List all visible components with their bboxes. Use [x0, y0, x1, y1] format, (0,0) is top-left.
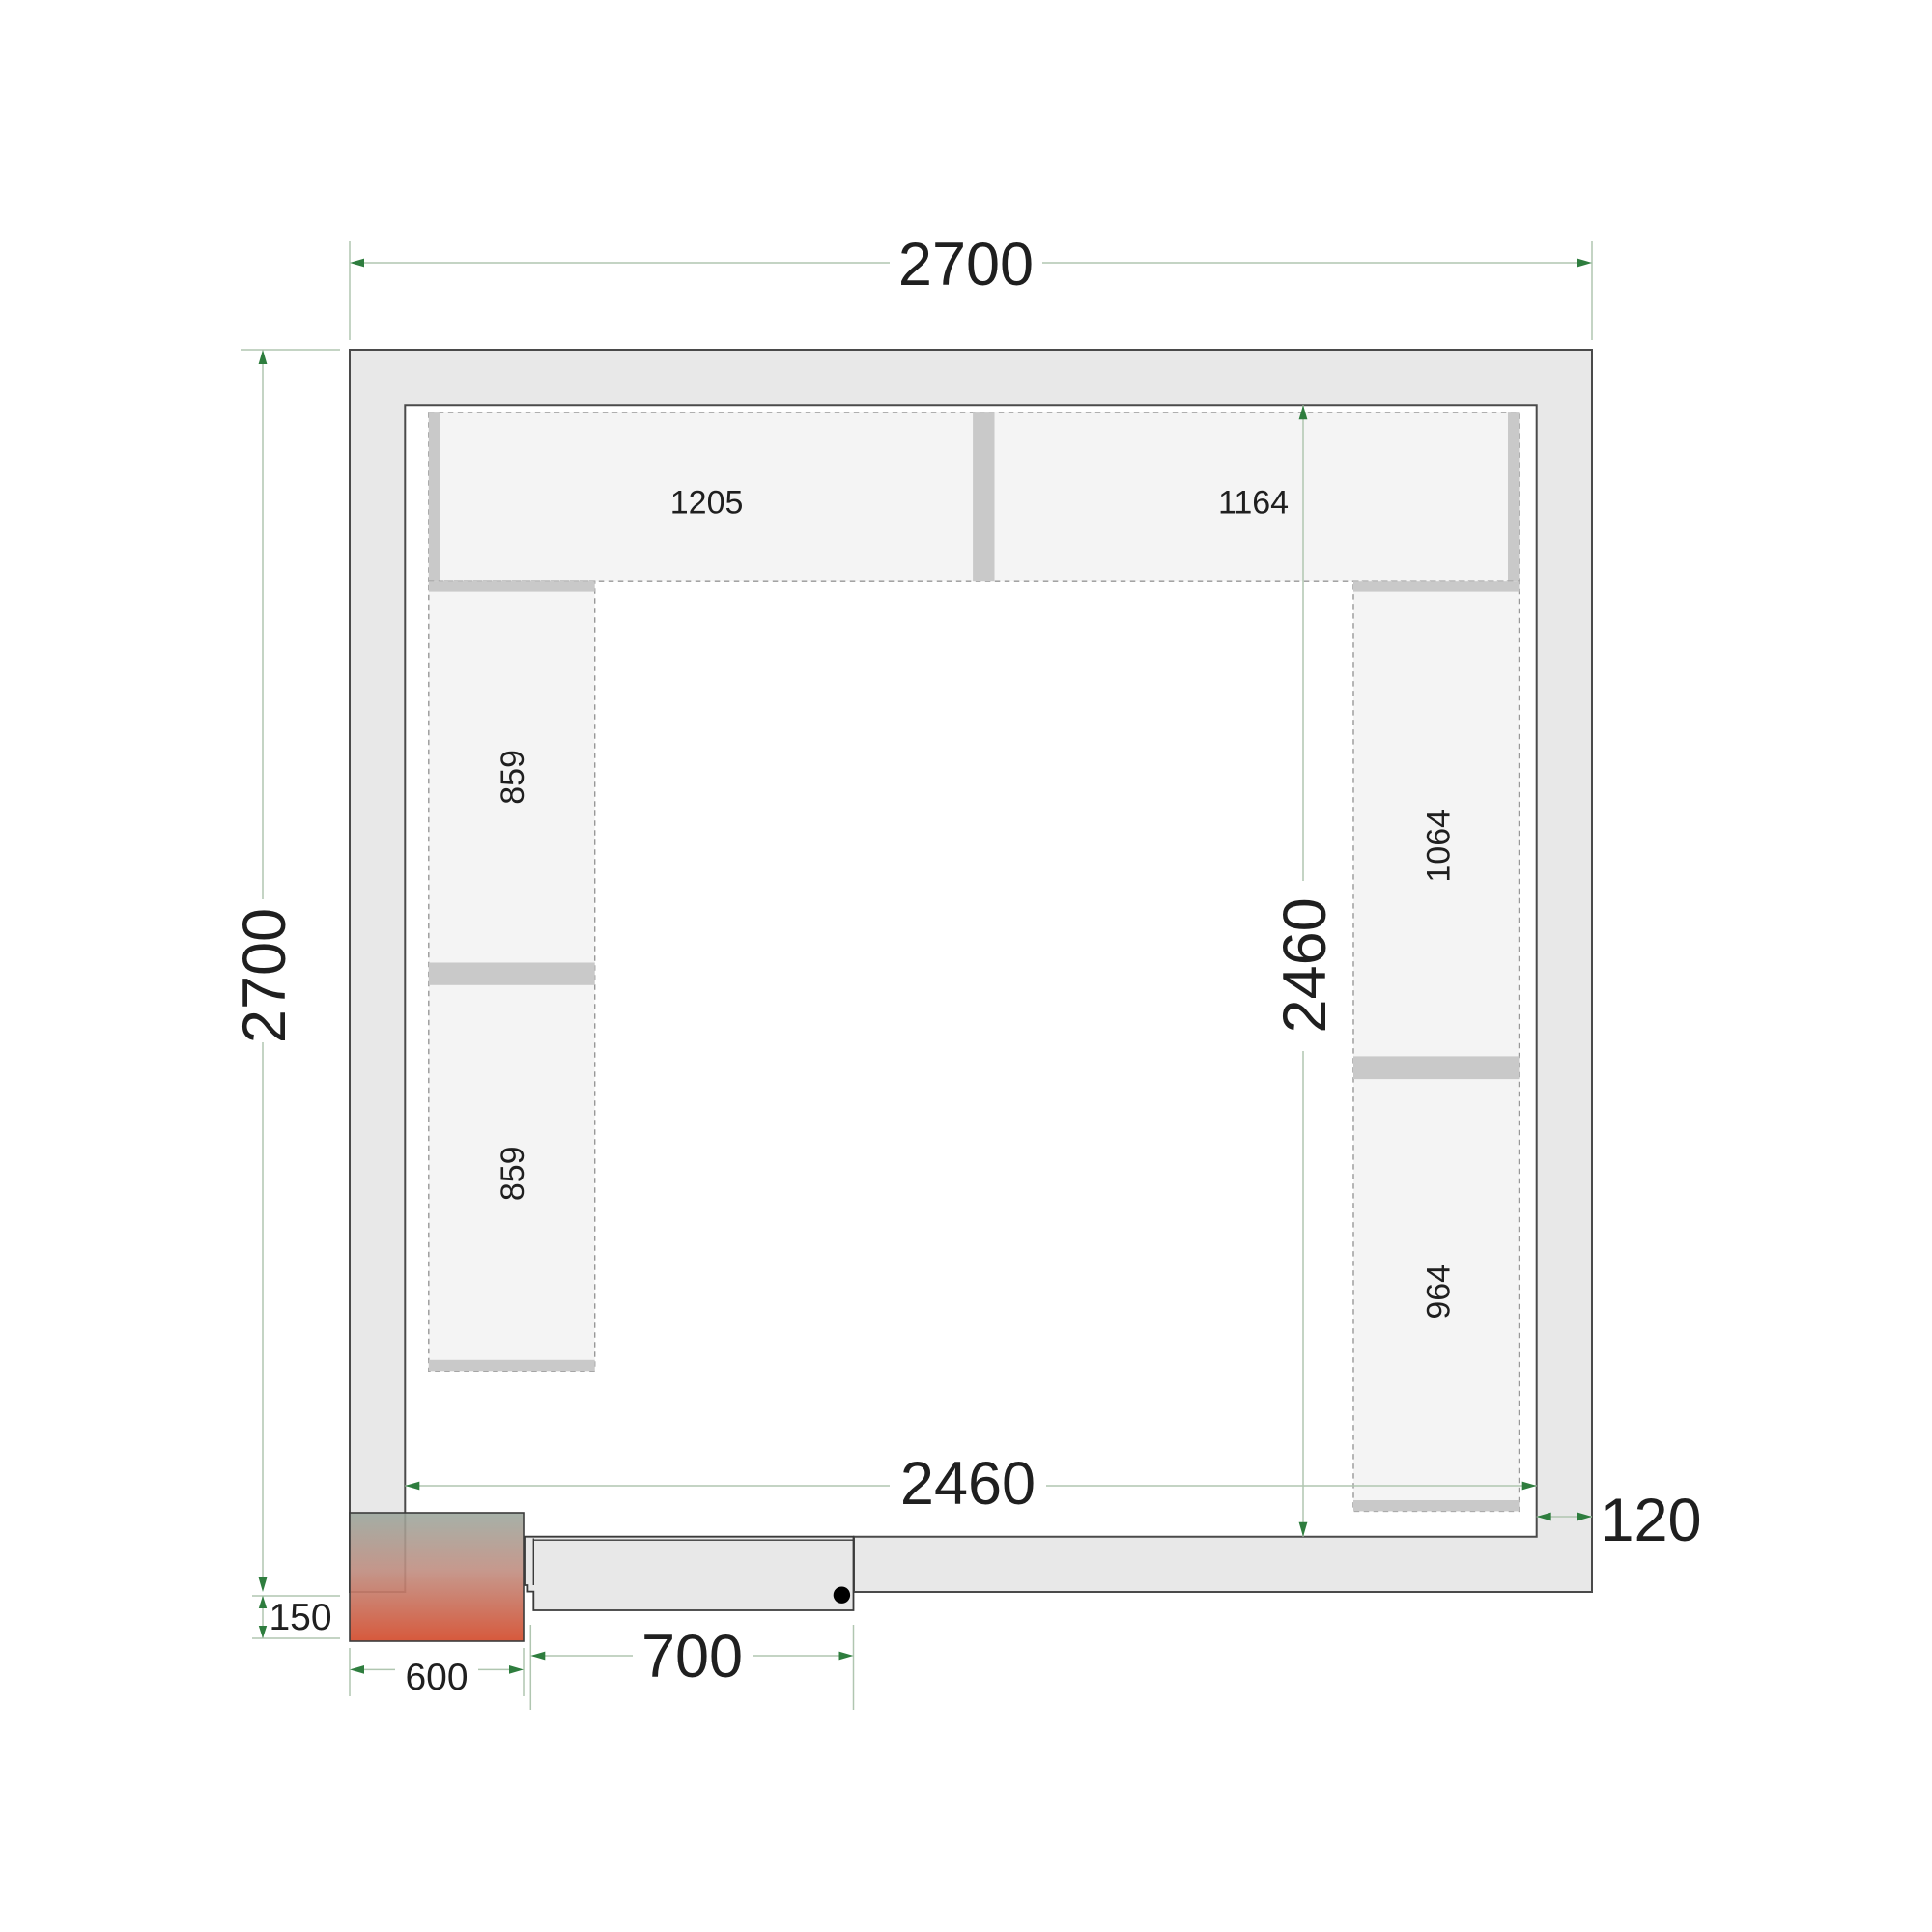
svg-text:600: 600	[405, 1657, 468, 1698]
svg-text:1205: 1205	[670, 485, 744, 522]
svg-text:2460: 2460	[1271, 897, 1339, 1033]
svg-text:1164: 1164	[1218, 485, 1289, 522]
svg-text:2700: 2700	[898, 231, 1034, 298]
svg-text:150: 150	[269, 1597, 331, 1638]
svg-text:120: 120	[1600, 1487, 1701, 1554]
svg-text:859: 859	[495, 1146, 531, 1201]
svg-text:2700: 2700	[231, 908, 298, 1043]
svg-text:1064: 1064	[1420, 810, 1457, 883]
svg-text:2460: 2460	[900, 1450, 1036, 1518]
svg-text:700: 700	[641, 1623, 743, 1690]
svg-text:964: 964	[1420, 1264, 1457, 1320]
svg-text:859: 859	[495, 750, 531, 805]
